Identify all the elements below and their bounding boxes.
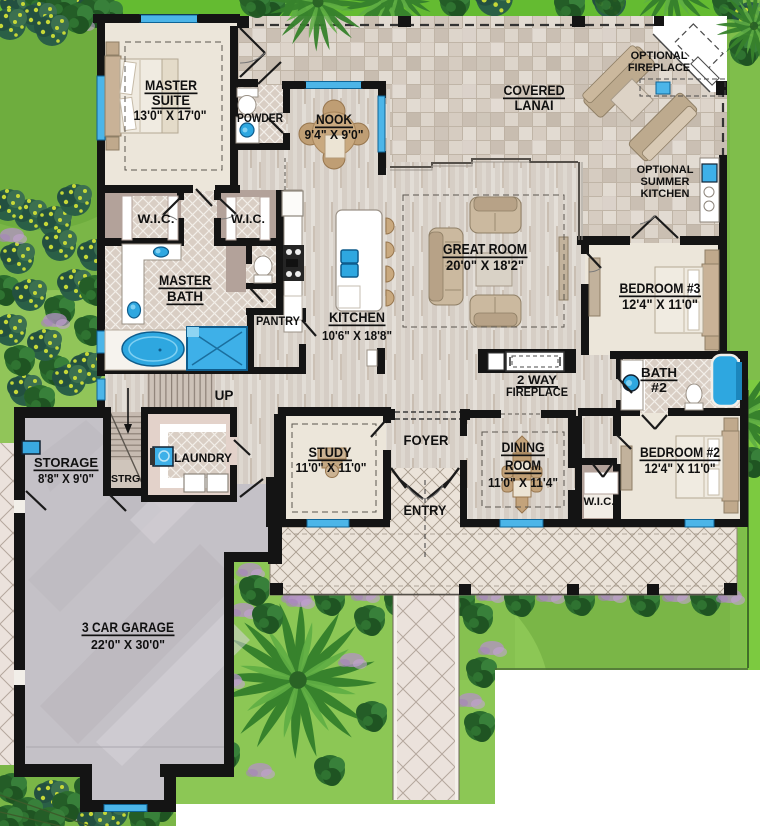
svg-text:W.I.C.: W.I.C. <box>231 212 265 226</box>
svg-text:OPTIONAL: OPTIONAL <box>637 164 694 176</box>
svg-text:OPTIONAL: OPTIONAL <box>631 50 688 62</box>
svg-text:8'8" X 9'0": 8'8" X 9'0" <box>38 472 94 486</box>
svg-text:MASTER: MASTER <box>145 77 197 93</box>
svg-text:SUMMER: SUMMER <box>641 176 690 188</box>
svg-text:W.I.C.: W.I.C. <box>138 212 175 226</box>
svg-text:13'0" X 17'0": 13'0" X 17'0" <box>134 108 207 123</box>
svg-text:LAUNDRY: LAUNDRY <box>174 451 232 465</box>
svg-text:FIREPLACE: FIREPLACE <box>628 62 690 74</box>
svg-text:SUITE: SUITE <box>152 92 190 108</box>
svg-text:PANTRY: PANTRY <box>256 314 300 328</box>
svg-text:12'4" X 11'0": 12'4" X 11'0" <box>645 461 716 476</box>
svg-text:ROOM: ROOM <box>505 458 541 473</box>
svg-text:FOYER: FOYER <box>404 432 449 448</box>
svg-text:20'0" X 18'2": 20'0" X 18'2" <box>446 258 524 273</box>
svg-text:11'0" X 11'4": 11'0" X 11'4" <box>488 475 558 490</box>
svg-text:11'0" X 11'0": 11'0" X 11'0" <box>296 460 367 475</box>
svg-text:#2: #2 <box>651 380 667 395</box>
svg-text:BATH: BATH <box>167 288 203 304</box>
svg-text:GREAT ROOM: GREAT ROOM <box>443 242 527 258</box>
svg-text:COVERED: COVERED <box>504 82 565 98</box>
svg-text:ENTRY: ENTRY <box>404 502 448 518</box>
svg-text:UP: UP <box>215 388 234 403</box>
svg-text:9'4" X 9'0": 9'4" X 9'0" <box>305 127 364 142</box>
svg-text:22'0" X 30'0": 22'0" X 30'0" <box>91 637 165 652</box>
svg-text:STRG.: STRG. <box>111 473 143 485</box>
svg-text:12'4" X 11'0": 12'4" X 11'0" <box>622 297 698 312</box>
svg-text:FIREPLACE: FIREPLACE <box>506 387 568 399</box>
svg-text:MASTER: MASTER <box>159 272 211 288</box>
svg-text:NOOK: NOOK <box>316 111 352 127</box>
svg-text:3 CAR GARAGE: 3 CAR GARAGE <box>82 619 174 635</box>
svg-text:KITCHEN: KITCHEN <box>641 188 690 200</box>
svg-text:POWDER: POWDER <box>237 111 283 125</box>
svg-text:LANAI: LANAI <box>515 97 554 113</box>
svg-text:BEDROOM #2: BEDROOM #2 <box>640 444 720 460</box>
svg-text:W.I.C.: W.I.C. <box>584 496 615 508</box>
svg-text:KITCHEN: KITCHEN <box>329 310 385 325</box>
svg-text:10'6" X 18'8": 10'6" X 18'8" <box>322 328 392 343</box>
svg-text:2 WAY: 2 WAY <box>517 375 557 387</box>
svg-text:STUDY: STUDY <box>309 444 353 460</box>
svg-text:BEDROOM #3: BEDROOM #3 <box>620 280 701 296</box>
svg-text:DINING: DINING <box>502 440 545 455</box>
svg-text:BATH: BATH <box>641 365 677 380</box>
svg-text:STORAGE: STORAGE <box>34 455 98 470</box>
